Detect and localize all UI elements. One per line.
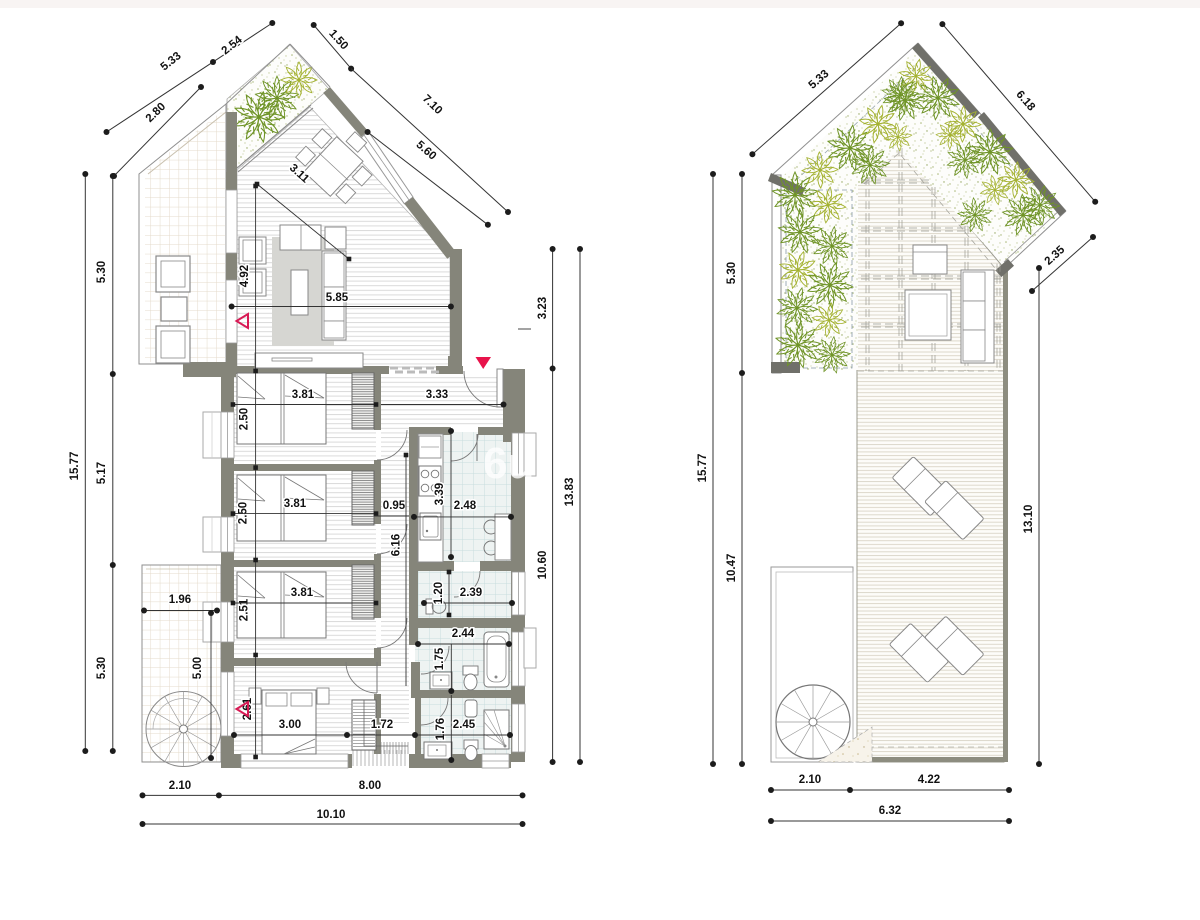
svg-text:1.96: 1.96 [169,594,191,606]
svg-text:3.33: 3.33 [426,389,448,401]
svg-text:2.50: 2.50 [239,408,251,430]
svg-text:3.81: 3.81 [291,587,314,599]
svg-text:5.17: 5.17 [96,462,108,484]
svg-text:1.76: 1.76 [435,718,447,740]
svg-text:13.83: 13.83 [564,478,576,507]
svg-text:8.00: 8.00 [359,780,381,792]
svg-text:15.77: 15.77 [69,452,81,481]
svg-text:6.32: 6.32 [879,805,901,817]
svg-text:2.51: 2.51 [239,598,251,621]
svg-text:2.10: 2.10 [169,780,191,792]
svg-text:2.48: 2.48 [454,500,477,512]
svg-text:5.00: 5.00 [192,657,204,679]
svg-text:10.10: 10.10 [317,809,346,821]
svg-text:1.20: 1.20 [433,582,445,604]
svg-text:5.30: 5.30 [96,261,108,283]
svg-text:3.00: 3.00 [279,719,301,731]
svg-text:0.95: 0.95 [383,500,406,512]
svg-text:2.50: 2.50 [238,502,250,524]
svg-text:5.85: 5.85 [326,292,349,304]
svg-text:2.45: 2.45 [453,719,476,731]
svg-text:2.10: 2.10 [799,774,821,786]
svg-text:5.30: 5.30 [726,262,738,284]
svg-text:1.75: 1.75 [434,647,446,670]
svg-text:3.81: 3.81 [292,389,315,401]
svg-text:4.92: 4.92 [239,265,251,287]
svg-text:6.16: 6.16 [391,534,403,556]
svg-text:4.22: 4.22 [918,774,940,786]
svg-text:13.10: 13.10 [1023,505,1035,534]
svg-text:2.44: 2.44 [452,628,475,640]
svg-text:3.39: 3.39 [434,483,446,505]
svg-text:5.30: 5.30 [96,657,108,679]
svg-text:2.39: 2.39 [460,587,482,599]
svg-text:3.81: 3.81 [284,498,307,510]
svg-text:6u: 6u [483,439,534,488]
svg-text:15.77: 15.77 [697,454,709,483]
svg-text:10.60: 10.60 [537,551,549,580]
svg-text:3.23: 3.23 [537,297,549,319]
svg-text:10.47: 10.47 [726,554,738,583]
svg-text:1.72: 1.72 [371,719,393,731]
